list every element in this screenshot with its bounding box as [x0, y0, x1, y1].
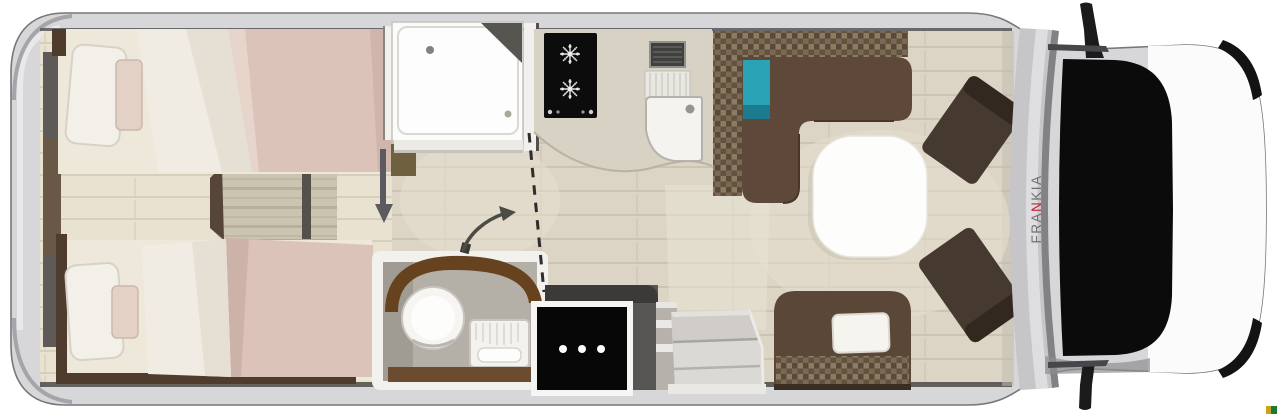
svg-text:FRANKIA: FRANKIA: [1029, 174, 1044, 243]
